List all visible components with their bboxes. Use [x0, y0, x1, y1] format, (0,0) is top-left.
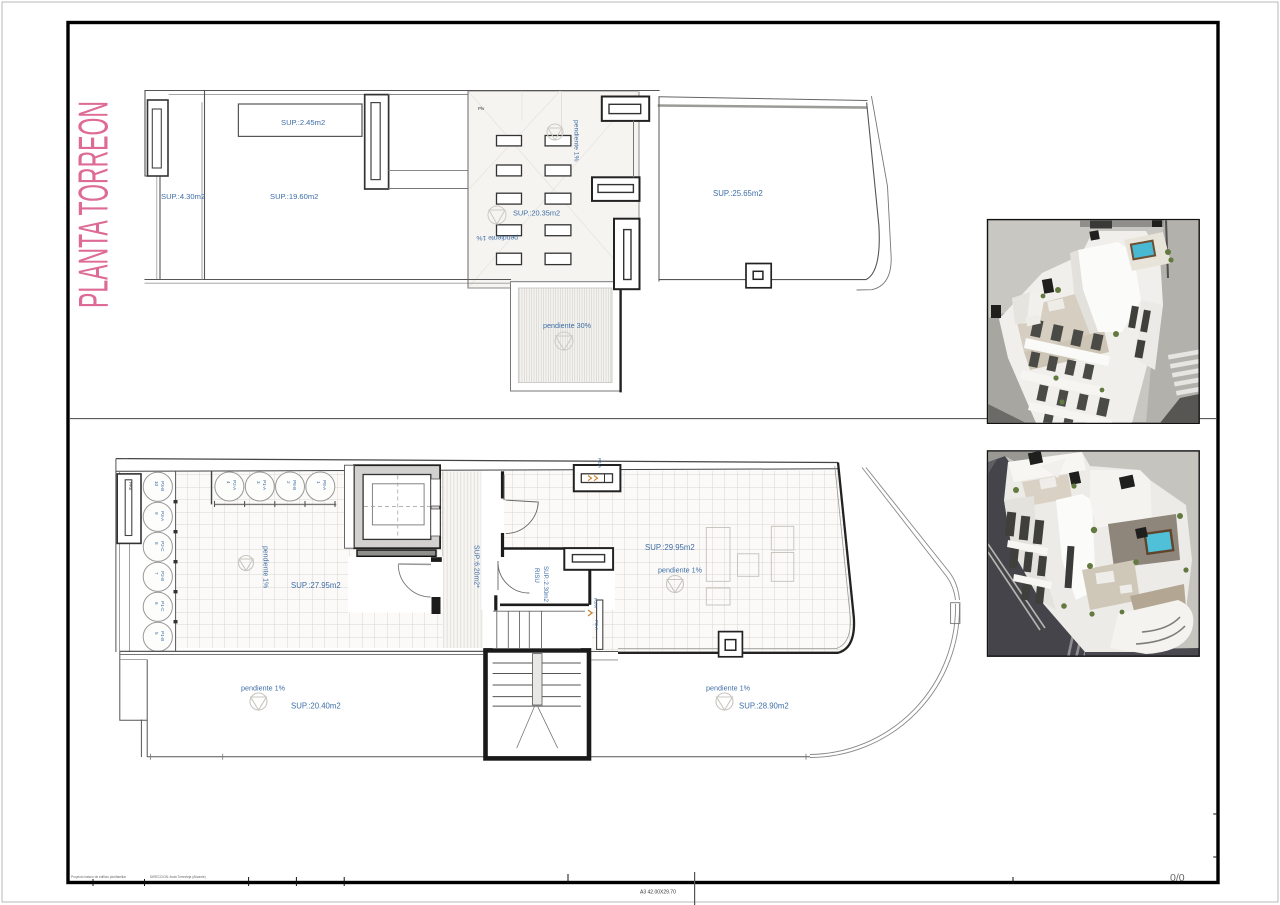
svg-text:3: 3 [256, 481, 261, 484]
svg-text:Plv: Plv [478, 106, 485, 111]
svg-text:SUP.:25.65m2: SUP.:25.65m2 [713, 189, 763, 198]
svg-text:DIRECCION: Avda Torrevieja (Al: DIRECCION: Avda Torrevieja (Alicante) [150, 875, 206, 879]
svg-text:P2-C: P2-C [160, 541, 165, 552]
svg-text:pendiente 1%: pendiente 1% [706, 684, 751, 693]
svg-text:10: 10 [154, 481, 159, 487]
svg-text:7: 7 [154, 572, 159, 575]
svg-text:P1-A: P1-A [262, 480, 267, 491]
svg-text:1: 1 [316, 481, 321, 484]
svg-text:RISU: RISU [533, 568, 540, 583]
svg-text:pendiente 1%: pendiente 1% [476, 234, 518, 241]
svg-text:PAV: PAV [128, 482, 133, 490]
svg-text:4: 4 [226, 481, 231, 484]
svg-text:A3 42.00X29.70: A3 42.00X29.70 [640, 890, 676, 896]
svg-text:9: 9 [154, 512, 159, 515]
svg-text:PLANTA TORREON: PLANTA TORREON [70, 101, 117, 308]
svg-text:P3-A: P3-A [594, 620, 599, 631]
svg-text:SUP.:27.95m2: SUP.:27.95m2 [291, 581, 341, 590]
svg-text:P1-C: P1-C [160, 601, 165, 612]
svg-text:SUP.:2.45m2: SUP.:2.45m2 [281, 118, 325, 127]
svg-text:0/0: 0/0 [1170, 872, 1185, 884]
svg-text:P4-A: P4-A [597, 458, 602, 469]
svg-text:pendiente 1%: pendiente 1% [262, 546, 269, 588]
svg-text:P1-B: P1-B [160, 631, 165, 641]
svg-text:pendiente 1%: pendiente 1% [241, 684, 286, 693]
svg-text:SUP.:19.60m2: SUP.:19.60m2 [270, 192, 318, 201]
svg-text:P3-A: P3-A [593, 598, 598, 609]
svg-text:SUP.:4.30m2: SUP.:4.30m2 [161, 192, 205, 201]
svg-text:pendiente 30%: pendiente 30% [543, 321, 592, 330]
svg-text:SUP.:2.30m2: SUP.:2.30m2 [542, 566, 549, 603]
svg-text:P3-A: P3-A [160, 511, 165, 522]
svg-text:pendiente 1%: pendiente 1% [573, 120, 580, 162]
svg-text:SUP.:28.90m2: SUP.:28.90m2 [739, 702, 789, 711]
svg-text:P8-A: P8-A [322, 480, 327, 491]
svg-text:SUP.:6.20m2*: SUP.:6.20m2* [473, 545, 480, 588]
svg-text:SUP.:29.95m2: SUP.:29.95m2 [645, 543, 695, 552]
svg-text:5: 5 [154, 632, 159, 635]
svg-text:P3-B: P3-B [160, 481, 165, 491]
svg-text:pendiente 1%: pendiente 1% [658, 566, 703, 575]
svg-text:Proyecto basico de edificio pl: Proyecto basico de edificio plurifamilia… [71, 875, 127, 879]
svg-text:SUP.:20.35m2: SUP.:20.35m2 [513, 209, 560, 218]
svg-text:SUP.:20.40m2: SUP.:20.40m2 [291, 702, 341, 711]
svg-text:P2-B: P2-B [160, 571, 165, 581]
svg-text:8: 8 [154, 542, 159, 545]
svg-text:P2-A: P2-A [232, 480, 237, 491]
svg-text:6: 6 [154, 602, 159, 605]
svg-text:2: 2 [286, 481, 291, 484]
svg-text:P8-B: P8-B [292, 480, 297, 490]
